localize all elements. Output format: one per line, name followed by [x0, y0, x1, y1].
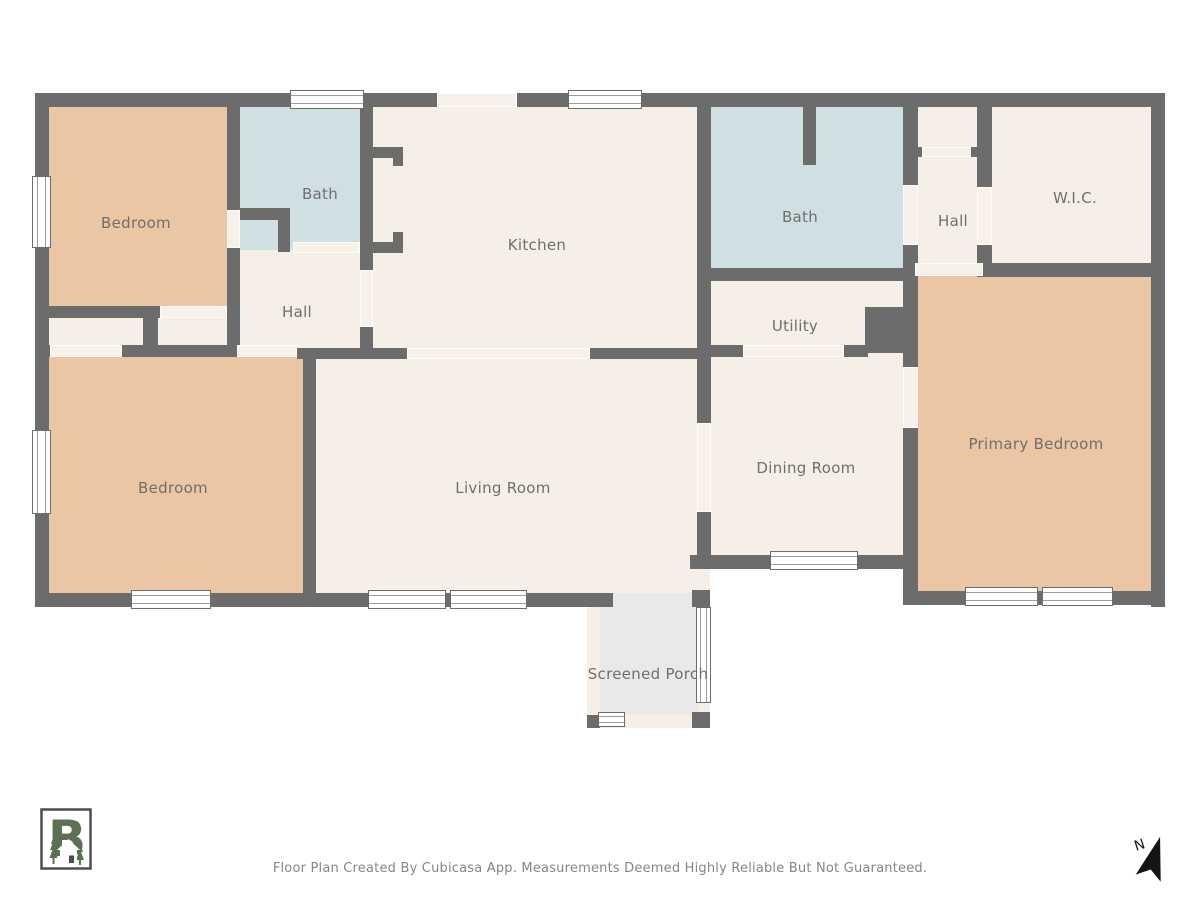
- room-label-bath-left: Bath: [302, 185, 338, 203]
- hall2-right-wall-upper: [977, 100, 992, 187]
- window-bedroom1-left: [32, 176, 51, 248]
- utility-bottom-wall-left: [703, 345, 744, 357]
- window-porch-right: [696, 607, 711, 703]
- kitchen-right-wall: [697, 100, 711, 423]
- room-label-wic: W.I.C.: [1053, 189, 1097, 207]
- primary-entry-opening: [915, 263, 983, 276]
- porch-post-topright: [692, 590, 710, 607]
- window-bedroom2-bottom: [131, 590, 211, 609]
- room-label-screened-porch: Screened Porch: [588, 665, 709, 683]
- kitchen-left-wall-stub: [360, 327, 373, 350]
- hall-left-floor: [227, 245, 373, 357]
- room-label-utility: Utility: [772, 317, 818, 335]
- wic-bottom-wall: [983, 263, 1165, 277]
- dining-primary-door-opening: [903, 367, 918, 428]
- dining-primary-wall: [903, 428, 918, 605]
- floor-plan-page: BedroomBathKitchenBathHallW.I.C.HallUtil…: [0, 0, 1200, 900]
- kitchen-floor: [360, 100, 710, 357]
- primary-bedroom-floor: [915, 273, 1157, 595]
- bath2-stub-wall: [803, 100, 816, 165]
- room-label-primary-bedroom: Primary Bedroom: [968, 435, 1103, 453]
- north-label: N: [1132, 836, 1147, 854]
- porch-screen-left: [587, 605, 600, 717]
- closet2-opening: [160, 306, 227, 318]
- living-room-floor: [310, 348, 710, 595]
- room-label-hall-left: Hall: [282, 303, 312, 321]
- hall2-left-wall-upper: [903, 100, 918, 185]
- dining-left-wall-lower: [697, 512, 711, 569]
- hall2-closet-jamb-left: [915, 147, 922, 157]
- bedroom-topleft-floor: [43, 100, 238, 308]
- front-door-opening: [437, 93, 517, 107]
- closets-bottom-wall: [122, 345, 238, 357]
- bath1-l-wall-vertical: [278, 208, 290, 252]
- kitchen-pantry-stub-bottom: [372, 242, 403, 253]
- hall-kitchen-door-opening: [360, 270, 373, 327]
- hall2-closet-door: [922, 147, 971, 157]
- utility-bottom-wall-right: [844, 345, 868, 357]
- floor-plan: BedroomBathKitchenBathHallW.I.C.HallUtil…: [0, 0, 1200, 900]
- bedroom1-door-opening: [227, 210, 240, 248]
- room-label-kitchen: Kitchen: [508, 236, 566, 254]
- window-primary-bottom-2: [1042, 587, 1113, 606]
- bedroom1-right-wall-upper: [227, 100, 240, 210]
- window-primary-bottom-1: [965, 587, 1038, 606]
- room-label-dining-room: Dining Room: [756, 459, 855, 477]
- bath1-door-opening: [293, 242, 360, 253]
- bath2-bottom-wall: [703, 268, 911, 281]
- bedroom1-right-wall-lower: [227, 248, 240, 352]
- screened-porch-floor: [600, 593, 698, 717]
- disclaimer-text: Floor Plan Created By Cubicasa App. Meas…: [0, 861, 1200, 876]
- kitchen-pantry-jamb-bottom: [393, 232, 403, 242]
- window-porch-bottom: [598, 712, 625, 727]
- bottom-wall-stub-left: [35, 345, 51, 357]
- window-kitchen-top: [568, 90, 642, 109]
- window-bath1-top: [290, 90, 364, 109]
- kitchen-pantry-jamb-top: [393, 156, 403, 166]
- room-label-bath-right: Bath: [782, 208, 818, 226]
- wic-door-opening: [977, 187, 992, 245]
- bedroom-bottomleft-floor: [43, 355, 315, 595]
- bedroom2-door-opening: [237, 345, 297, 357]
- porch-post-bottomright: [692, 712, 710, 728]
- bedroom2-right-wall: [303, 350, 316, 595]
- bath-left-floor: [237, 100, 373, 250]
- living-top-wall-right: [590, 348, 710, 359]
- bath2-door-opening: [903, 185, 918, 245]
- window-dining-bottom: [770, 551, 858, 570]
- living-dining-opening: [697, 423, 711, 512]
- room-label-bedroom-topleft: Bedroom: [101, 214, 171, 232]
- room-label-living-room: Living Room: [455, 479, 550, 497]
- north-arrow-icon: N: [1126, 830, 1182, 888]
- closet1-opening: [50, 345, 122, 357]
- window-living-bottom-1: [368, 590, 446, 609]
- utility-dining-opening: [743, 345, 844, 357]
- hall2-closet-jamb-right: [971, 147, 979, 157]
- window-living-bottom-2: [450, 590, 527, 609]
- exterior-wall-right: [1151, 93, 1165, 607]
- room-label-bedroom-bottomleft: Bedroom: [138, 479, 208, 497]
- window-bedroom2-left: [32, 430, 51, 514]
- room-label-hall-right: Hall: [938, 212, 968, 230]
- kitchen-living-opening: [407, 348, 590, 359]
